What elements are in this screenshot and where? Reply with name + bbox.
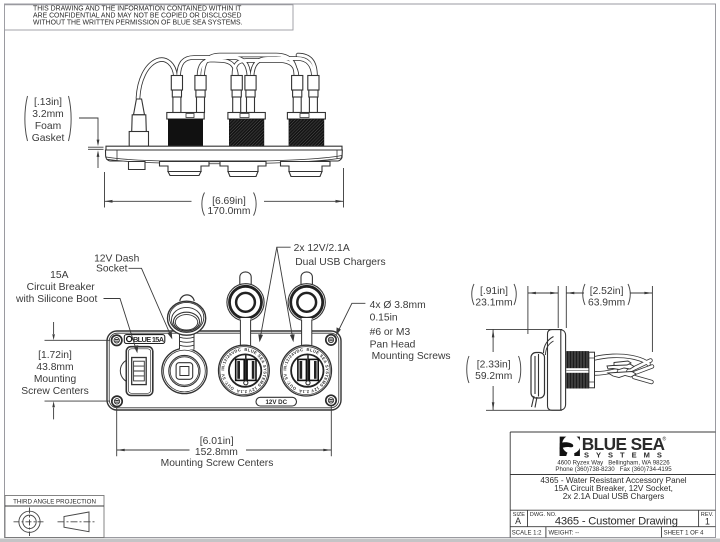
svg-text:THIRD ANGLE PROJECTION: THIRD ANGLE PROJECTION — [13, 499, 96, 506]
svg-text:23.1mm: 23.1mm — [475, 298, 512, 309]
svg-text:Phone (360)738-8230 Fax (360: Phone (360)738-8230 Fax (360)734-4195 — [555, 466, 672, 473]
svg-text:#6 or M3: #6 or M3 — [370, 327, 411, 338]
svg-text:SHEET 1 OF 4: SHEET 1 OF 4 — [664, 531, 705, 537]
svg-text:[.13in]: [.13in] — [34, 97, 62, 108]
svg-text:A: A — [515, 516, 521, 526]
svg-text:WEIGHT: --: WEIGHT: -- — [549, 531, 580, 537]
svg-text:170.0mm: 170.0mm — [208, 206, 251, 217]
svg-text:Pan Head: Pan Head — [370, 339, 416, 350]
svg-text:59.2mm: 59.2mm — [475, 371, 512, 382]
svg-text:Socket: Socket — [96, 264, 128, 275]
svg-text:ARE CONFIDENTIAL AND MAY NOT B: ARE CONFIDENTIAL AND MAY NOT BE COPIED O… — [33, 12, 241, 19]
svg-text:[2.52in]: [2.52in] — [590, 286, 624, 297]
svg-text:Mounting Screw Centers: Mounting Screw Centers — [161, 458, 274, 469]
svg-text:Gasket: Gasket — [32, 133, 65, 144]
svg-text:[2.33in]: [2.33in] — [477, 360, 511, 371]
svg-text:WITHOUT THE WRITTEN PERMISSION: WITHOUT THE WRITTEN PERMISSION OF BLUE S… — [33, 20, 243, 27]
svg-text:[.91in]: [.91in] — [480, 286, 508, 297]
svg-text:with Silicone Boot: with Silicone Boot — [15, 294, 97, 305]
svg-text:152.8mm: 152.8mm — [195, 447, 238, 458]
svg-text:63.9mm: 63.9mm — [588, 298, 625, 309]
svg-text:Circuit Breaker: Circuit Breaker — [27, 282, 96, 293]
svg-text:15A: 15A — [50, 270, 68, 281]
svg-text:Screw Centers: Screw Centers — [21, 386, 89, 397]
svg-text:BLUE 15A: BLUE 15A — [133, 335, 165, 344]
svg-text:[6.01in]: [6.01in] — [200, 436, 234, 447]
svg-text:Mounting Screws: Mounting Screws — [372, 351, 451, 362]
svg-text:Dual USB Chargers: Dual USB Chargers — [295, 257, 385, 268]
svg-text:DWG. NO.: DWG. NO. — [530, 512, 557, 518]
svg-text:[1.72in]: [1.72in] — [38, 350, 72, 361]
svg-text:12V DC: 12V DC — [265, 399, 287, 406]
svg-text:SCALE 1:2: SCALE 1:2 — [512, 531, 542, 537]
svg-text:4x Ø 3.8mm: 4x Ø 3.8mm — [370, 300, 426, 311]
svg-text:THIS DRAWING AND THE INFORMATI: THIS DRAWING AND THE INFORMATION CONTAIN… — [33, 5, 242, 12]
svg-text:2x 2.1A Dual USB Chargers: 2x 2.1A Dual USB Chargers — [563, 492, 664, 501]
svg-text:Mounting: Mounting — [34, 374, 77, 385]
svg-text:4365 - Customer Drawing: 4365 - Customer Drawing — [555, 515, 678, 527]
svg-text:®: ® — [663, 436, 667, 443]
svg-text:43.8mm: 43.8mm — [36, 362, 73, 373]
svg-text:0.15in: 0.15in — [370, 312, 398, 323]
svg-text:2x 12V/2.1A: 2x 12V/2.1A — [294, 243, 350, 254]
svg-text:3.2mm: 3.2mm — [32, 109, 63, 120]
svg-text:1: 1 — [705, 517, 710, 527]
svg-text:SYSTEMS: SYSTEMS — [584, 450, 669, 459]
svg-text:Foam: Foam — [35, 121, 61, 132]
